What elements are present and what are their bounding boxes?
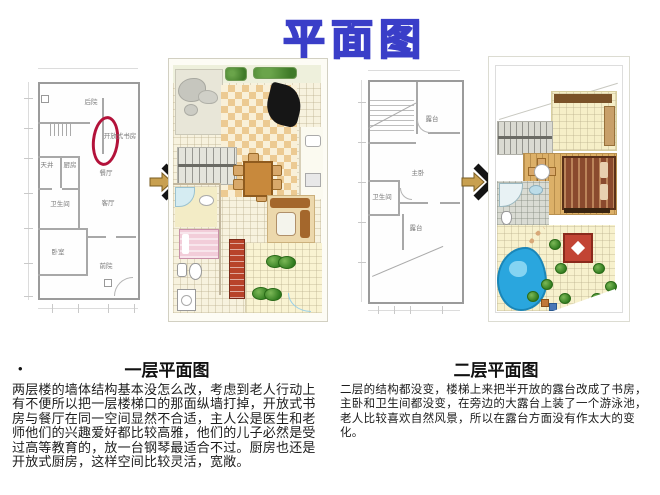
tick-mark (442, 306, 443, 314)
rock-garden (175, 69, 223, 135)
shrub (593, 263, 605, 274)
tick-mark (358, 142, 366, 143)
room-label-terrace: 露台 (410, 222, 423, 232)
tick-mark (410, 306, 411, 314)
shrub (541, 279, 553, 290)
wall (402, 214, 404, 250)
pavilion (563, 233, 593, 263)
wall (428, 132, 460, 134)
first-floor-description: 两层楼的墙体结构基本没怎么改，考虑到老人行动上有不便所以把一层楼梯口的那面纵墙打… (12, 383, 320, 469)
dimension-line (368, 70, 460, 71)
tick-mark (24, 98, 33, 99)
wall (368, 214, 400, 216)
wall (368, 142, 416, 144)
pillow (600, 184, 608, 200)
stair-symbol (370, 100, 414, 134)
dining-table (243, 161, 273, 197)
room-label-bathroom: 卫生间 (372, 191, 392, 201)
outer-wall (38, 82, 140, 300)
floor-plan-second-design (488, 56, 630, 322)
bookshelf (604, 106, 615, 146)
room-label-dining: 餐厅 (100, 167, 113, 177)
shrub (605, 281, 617, 292)
room-label-lightwell: 天井 (41, 159, 54, 169)
wall (440, 202, 460, 204)
pool-highlight (509, 261, 527, 277)
coffee-table (276, 212, 296, 236)
tick-mark (358, 102, 366, 103)
presentation-slide: 平面图 后院 开放式书房 天井 (0, 0, 660, 495)
bathroom-sink (529, 185, 543, 195)
desk (554, 94, 612, 103)
tick-mark (394, 306, 395, 314)
room-label-backyard: 后院 (85, 96, 98, 106)
washing-machine (177, 289, 196, 311)
tick-mark (358, 182, 366, 183)
study-floor (551, 91, 617, 151)
tick-mark (108, 304, 109, 313)
bathroom-sink (199, 195, 214, 206)
dimension-line (361, 80, 362, 302)
bed (562, 156, 616, 210)
floor-plan-second-original: 露台 主卧 卫生间 露台 (358, 62, 472, 320)
wall (398, 180, 400, 216)
dimension-line (38, 68, 138, 69)
tick-mark (378, 306, 379, 314)
tick-mark (78, 304, 79, 313)
bidet (177, 263, 187, 277)
pavilion-top (571, 241, 585, 255)
tick-mark (24, 193, 33, 194)
tick-mark (358, 262, 366, 263)
dimension-line (28, 82, 29, 300)
wall (38, 156, 78, 158)
pillow (182, 234, 189, 254)
tick-mark (358, 222, 366, 223)
tick-mark (134, 304, 135, 313)
bathroom-floor (497, 181, 549, 225)
sofa (270, 198, 310, 208)
washer-door (181, 295, 192, 306)
room-label-frontyard: 前院 (100, 260, 113, 270)
room-label-terrace-upper: 露台 (426, 113, 439, 123)
dimension-line (38, 308, 138, 309)
second-floor-title: 二层平面图 (340, 356, 652, 381)
dimension-line (368, 310, 460, 311)
toilet (189, 263, 202, 280)
living-room-set (267, 195, 315, 243)
shrub (527, 291, 539, 302)
wall (219, 183, 221, 295)
stone (198, 90, 218, 104)
staircase (497, 121, 553, 155)
wall (173, 183, 221, 185)
toilet (501, 211, 512, 225)
room-label-living: 客厅 (102, 197, 115, 207)
room-label-master-bedroom: 主卧 (412, 167, 425, 177)
stair-diagonal (368, 103, 416, 129)
list-bullet: • (18, 361, 23, 376)
drain-symbol (104, 279, 112, 287)
tick-mark (24, 128, 33, 129)
wall (60, 156, 62, 188)
shrub (264, 288, 282, 301)
tick-mark (24, 263, 33, 264)
wall (116, 236, 136, 238)
door-arc (288, 293, 311, 312)
wall (400, 202, 428, 204)
drain-symbol (41, 95, 49, 103)
first-floor-title: 一层平面图 (12, 356, 322, 381)
room-label-kitchen: 厨房 (64, 159, 77, 169)
tick-mark (24, 228, 33, 229)
stair-rail (498, 136, 552, 139)
stool (541, 299, 549, 307)
tick-mark (24, 296, 33, 297)
second-floor-description: 二层的结构都没变，楼梯上来把半开放的露台改成了书房，主卧和卫生间都没变，在旁边的… (340, 383, 650, 441)
kitchen-counter (299, 127, 323, 199)
plant-box (225, 67, 247, 81)
shrub (278, 256, 296, 269)
stair-symbol (50, 124, 72, 136)
stool (549, 303, 557, 311)
wall (38, 274, 86, 276)
shrub (555, 263, 567, 274)
stove (305, 173, 321, 187)
floor-plan-first-original: 后院 开放式书房 天井 厨房 餐厅 卫生间 客厅 卧室 前院 (20, 58, 164, 322)
swimming-pool (497, 247, 547, 311)
stone (184, 104, 198, 116)
floor-plan-first-design (168, 58, 328, 322)
plant-box (253, 67, 297, 79)
bed-bench (564, 208, 610, 213)
patio-floor (245, 243, 322, 313)
first-floor-section: • 一层平面图 两层楼的墙体结构基本没怎么改，考虑到老人行动上有不便所以把一层楼… (12, 356, 322, 469)
shower (499, 183, 523, 207)
wall (86, 236, 106, 238)
shrub (549, 239, 561, 250)
terrace-floor (497, 225, 615, 311)
room-label-bedroom: 卧室 (52, 246, 65, 256)
second-floor-section: 二层平面图 二层的结构都没变，楼梯上来把半开放的露台改成了书房，主卧和卫生间都没… (340, 356, 652, 441)
tick-mark (52, 304, 53, 313)
shrub (559, 293, 571, 304)
room-label-open-study: 开放式书房 (104, 130, 137, 140)
room-label-bathroom: 卫生间 (50, 198, 70, 208)
wall (38, 188, 52, 190)
wall (368, 180, 398, 182)
staircase (177, 147, 237, 185)
bed (179, 229, 219, 259)
sofa (300, 210, 310, 238)
kitchen-sink (305, 135, 321, 147)
pillow (600, 162, 608, 178)
wall (78, 156, 80, 230)
tick-mark (24, 158, 33, 159)
wall (62, 188, 79, 190)
stair-rail (178, 164, 236, 167)
wall (38, 228, 88, 230)
round-table (534, 164, 550, 180)
bookshelf (229, 239, 245, 299)
